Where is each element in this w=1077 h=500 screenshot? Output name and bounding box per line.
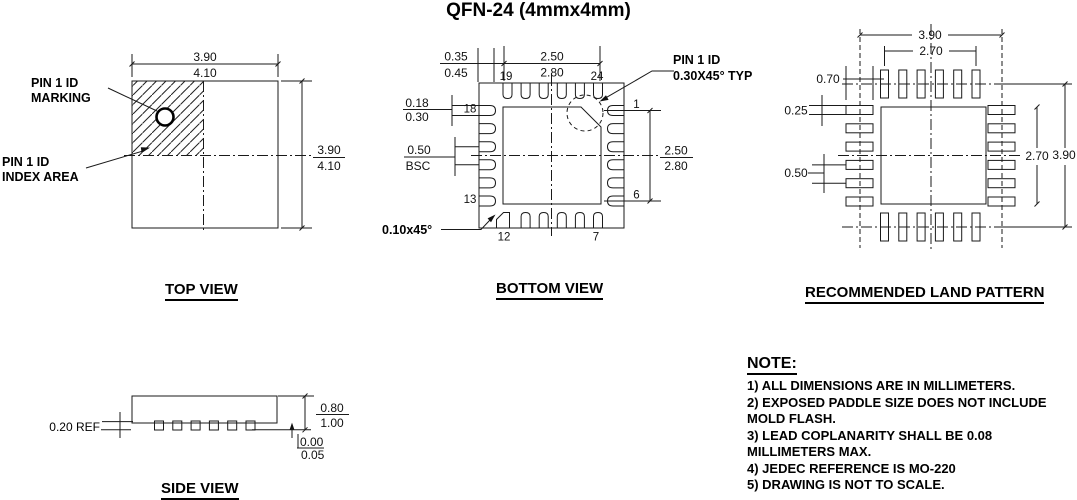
pitch-value: 0.50: [407, 143, 431, 157]
note-item: 1) ALL DIMENSIONS ARE IN MILLIMETERS.: [747, 378, 1063, 395]
side-lead-thickness: 0.20 REF: [40, 420, 100, 434]
bottom-view-caption: BOTTOM VIEW: [496, 280, 603, 300]
pin-24: 24: [591, 71, 604, 83]
pin-6: 6: [633, 190, 639, 202]
pin1-marking-label: PIN 1 ID MARKING: [31, 76, 91, 106]
pin1-index-label: PIN 1 ID INDEX AREA: [2, 155, 79, 185]
land-pattern-drawing: 3.90 2.70 0.70 0.25 0.50 2.70 3: [784, 24, 1076, 252]
note-item: 4) JEDEC REFERENCE IS MO-220: [747, 461, 1063, 478]
note-item: 5) DRAWING IS NOT TO SCALE.: [747, 477, 1063, 494]
pin1-index-label-line2: INDEX AREA: [2, 170, 79, 185]
side-height-min: 0.80: [320, 401, 344, 415]
notes-heading: NOTE:: [747, 355, 797, 375]
land-pattern-caption: RECOMMENDED LAND PATTERN: [805, 284, 1044, 304]
pin-18: 18: [464, 104, 477, 116]
side-height-max: 1.00: [320, 416, 344, 430]
side-standoff-max: 0.05: [301, 448, 325, 462]
pin-12: 12: [498, 232, 511, 244]
epad-width-max: 2.80: [540, 66, 564, 80]
top-view-drawing: 3.90 4.10 3.90 4.10: [86, 50, 345, 233]
pin1-id-callout-line2: 0.30X45° TYP: [673, 68, 752, 84]
pin12-chamfer-pad: [497, 213, 510, 229]
corner-lead-min: 0.45: [444, 66, 468, 80]
land-outer-width: 3.90: [918, 28, 942, 42]
pin-13: 13: [464, 194, 477, 206]
land-pad-length: 0.70: [816, 72, 840, 86]
land-inner-width: 2.70: [919, 44, 943, 58]
pin1-index-label-line1: PIN 1 ID: [2, 155, 79, 170]
pin-1: 1: [633, 99, 639, 111]
pin1-marking-label-line1: PIN 1 ID: [31, 76, 91, 91]
bottom-view-drawing: 0.35 0.45 2.50 2.80 0.18 0.30 0.50 BSC 2…: [403, 46, 693, 244]
side-view-caption: SIDE VIEW: [161, 480, 239, 500]
side-standoff-min: 0.00: [300, 435, 324, 449]
chamfer-callout: 0.10x45°: [382, 223, 432, 238]
land-inner-height: 2.70: [1025, 149, 1049, 163]
land-outer-height: 3.90: [1052, 148, 1076, 162]
page-title: QFN-24 (4mmx4mm): [0, 0, 1077, 22]
top-height-max: 3.90: [317, 143, 341, 157]
top-width-max: 3.90: [193, 50, 217, 64]
top-width-min: 4.10: [193, 66, 217, 80]
epad-width-min: 2.50: [540, 50, 564, 64]
land-pad-width: 0.25: [784, 104, 808, 118]
top-height-min: 4.10: [317, 159, 341, 173]
qfn24-package-drawing: { "title": "QFN-24 (4mmx4mm)", "top_view…: [0, 0, 1077, 498]
pitch-bsc: BSC: [406, 159, 431, 173]
top-view-caption: TOP VIEW: [165, 281, 238, 301]
lead-width-max: 0.30: [405, 110, 429, 124]
note-item: 3) LEAD COPLANARITY SHALL BE 0.08 MILLIM…: [747, 428, 1063, 461]
pin1-id-dashed-circle: [567, 95, 603, 131]
epad-height-min: 2.50: [664, 144, 688, 158]
pin1-id-callout-line1: PIN 1 ID: [673, 52, 752, 68]
pin1-marking-circle: [157, 109, 174, 126]
corner-lead-max: 0.35: [444, 50, 468, 64]
pin1-id-callout: PIN 1 ID 0.30X45° TYP: [673, 52, 752, 84]
pin1-marking-label-line2: MARKING: [31, 91, 91, 106]
land-pitch: 0.50: [784, 166, 808, 180]
epad-height-max: 2.80: [664, 159, 688, 173]
lead-width-min: 0.18: [405, 96, 429, 110]
pin-19: 19: [500, 71, 513, 83]
notes-block: NOTE: 1) ALL DIMENSIONS ARE IN MILLIMETE…: [747, 355, 1063, 494]
side-view-drawing: 0.80 1.00 0.00 0.05: [101, 394, 349, 463]
pin-7: 7: [593, 232, 599, 244]
note-item: 2) EXPOSED PADDLE SIZE DOES NOT INCLUDE …: [747, 395, 1063, 428]
